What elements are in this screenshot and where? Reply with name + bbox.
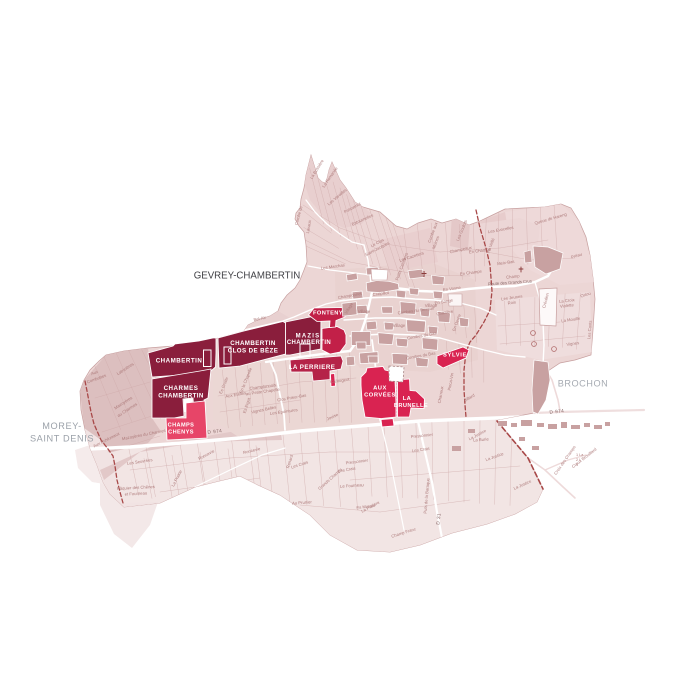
svg-text:AUX: AUX	[373, 386, 387, 392]
svg-text:LA PERRIERE: LA PERRIERE	[289, 364, 336, 371]
svg-text:2 L: 2 L	[576, 458, 581, 462]
svg-text:GEVREY-CHAMBERTIN: GEVREY-CHAMBERTIN	[194, 271, 301, 282]
svg-text:Village: Village	[358, 309, 371, 314]
svg-text:CORVÉES: CORVÉES	[364, 391, 396, 399]
svg-text:MAZIS: MAZIS	[296, 334, 321, 340]
svg-text:Village: Village	[393, 323, 406, 328]
svg-text:CHAMBERTIN: CHAMBERTIN	[230, 340, 276, 347]
svg-text:CHAMPS: CHAMPS	[168, 423, 195, 429]
svg-text:CLOS DE BÈZE: CLOS DE BÈZE	[228, 347, 279, 355]
svg-text:FONTENY: FONTENY	[313, 311, 343, 317]
svg-text:LA: LA	[403, 396, 411, 402]
svg-text:BROCHON: BROCHON	[558, 379, 608, 389]
svg-text:MOREY-: MOREY-	[42, 421, 82, 431]
svg-text:CHAMBERTIN: CHAMBERTIN	[158, 393, 204, 400]
svg-text:Village: Village	[425, 303, 438, 308]
svg-text:SAINT DENIS: SAINT DENIS	[30, 434, 94, 444]
svg-text:3: 3	[576, 463, 578, 467]
svg-text:CHAMBERTIN: CHAMBERTIN	[156, 358, 203, 365]
svg-text:BRUNELLE: BRUNELLE	[394, 403, 428, 409]
svg-text:SYLVIE: SYLVIE	[443, 353, 467, 359]
svg-text:CHENYS: CHENYS	[168, 430, 194, 436]
svg-text:1 La: 1 La	[576, 453, 584, 457]
svg-text:CHAMBERTIN: CHAMBERTIN	[287, 340, 331, 346]
svg-text:CHARMES: CHARMES	[164, 385, 199, 392]
